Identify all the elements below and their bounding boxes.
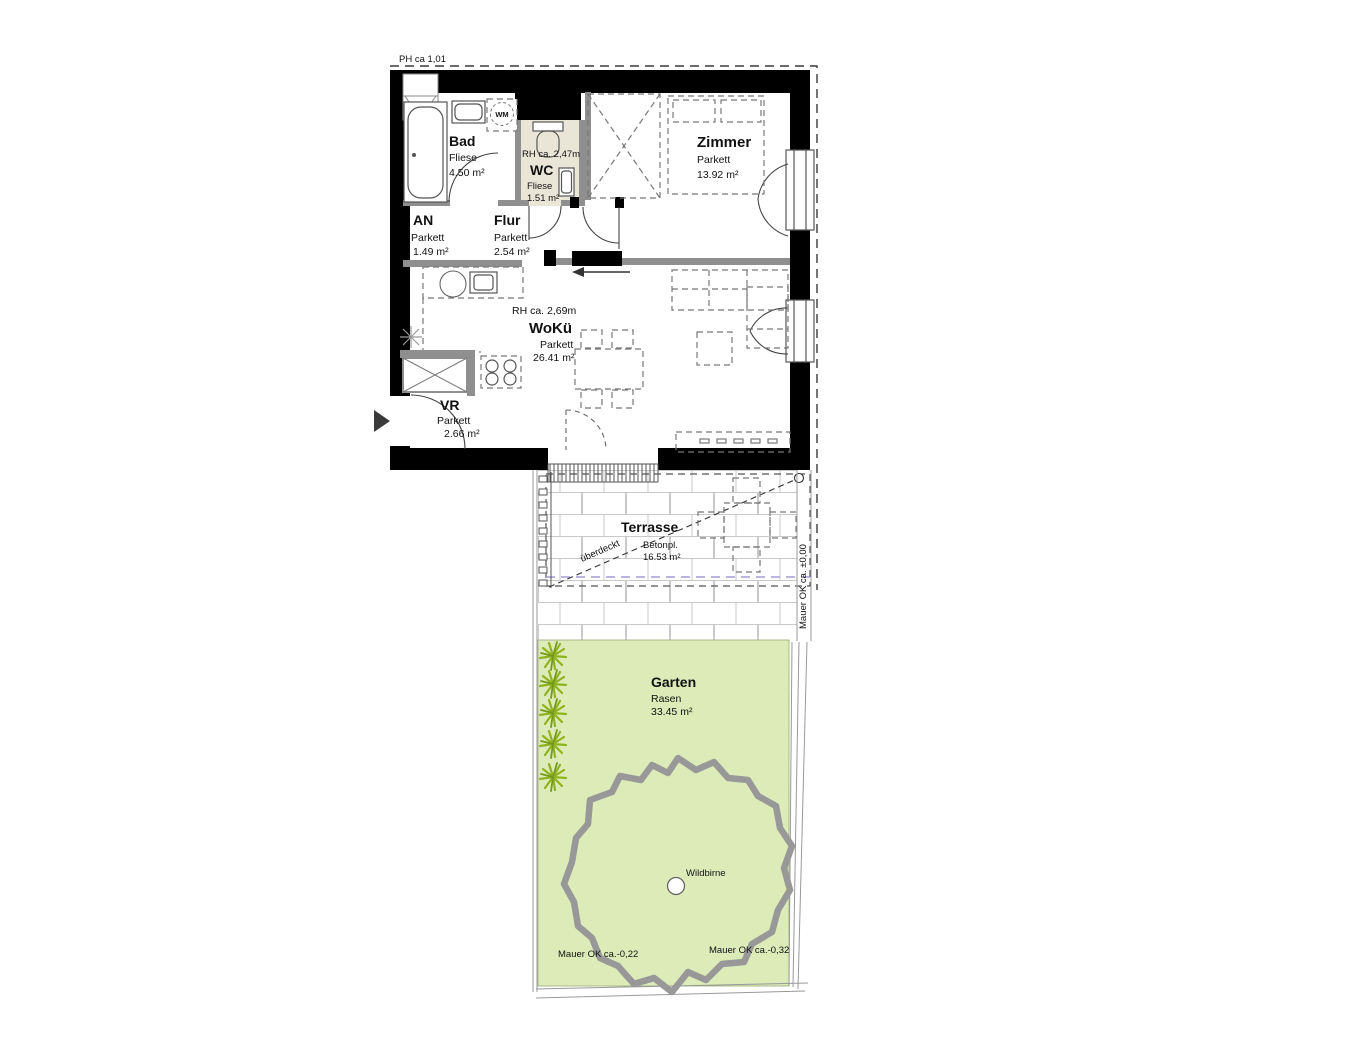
garten-name: Garten — [651, 674, 696, 690]
tree-label: Wildbirne — [686, 868, 726, 879]
terrasse-floor: Betonpl. — [643, 540, 678, 551]
boiler-icon — [400, 326, 422, 348]
parapet-height-label: PH ca 1,01 — [399, 54, 446, 65]
wc-area: 1.51 m² — [527, 193, 559, 204]
bad-washbasin — [452, 101, 485, 123]
an-area: 1.49 m² — [413, 246, 449, 258]
garten-floor: Rasen — [651, 693, 682, 705]
washing-machine: WM — [487, 99, 517, 131]
terrasse-wall-label: Mauer OK ca. ±0,00 — [798, 544, 809, 629]
vr-wardrobe — [400, 350, 475, 396]
terrasse-area-value: 16.53 m² — [643, 552, 681, 563]
tree-trunk — [668, 878, 685, 895]
zimmer-name: Zimmer — [697, 134, 751, 151]
floorplan-canvas: PH ca 1,01 überdeckt — [0, 0, 1370, 1060]
zimmer-area: 13.92 m² — [697, 169, 739, 181]
bathtub — [404, 102, 447, 202]
wc-floor: Fliese — [527, 181, 552, 192]
flur-area: 2.54 m² — [494, 246, 530, 258]
an-floor: Parkett — [411, 232, 444, 244]
garten-lawn — [538, 640, 789, 986]
bad-floor: Fliese — [449, 152, 477, 164]
bad-area: 4.50 m² — [449, 167, 485, 179]
vr-floor: Parkett — [437, 415, 470, 427]
sliding-door-pocket — [572, 251, 622, 266]
vr-name: VR — [440, 397, 459, 413]
garten-wall-left-label: Mauer OK ca.-0,22 — [558, 949, 638, 960]
wc-shaft — [515, 92, 581, 122]
woku-name: WoKü — [529, 320, 572, 337]
wc-rh: RH ca. 2,47m — [522, 149, 580, 160]
woku-area: 26.41 m² — [533, 352, 575, 364]
zimmer-floor: Parkett — [697, 154, 730, 166]
vr-area: 2.66 m² — [444, 428, 480, 440]
wc-washbasin — [559, 168, 574, 196]
garten-area-value: 33.45 m² — [651, 706, 693, 718]
garten-wall-right-label: Mauer OK ca.-0,32 — [709, 945, 789, 956]
an-name: AN — [413, 212, 433, 228]
flur-name: Flur — [494, 212, 521, 228]
woku-floor: Parkett — [540, 339, 573, 351]
woku-rh: RH ca. 2,69m — [512, 305, 576, 317]
wm-label: WM — [495, 110, 508, 119]
wc-name: WC — [530, 162, 553, 178]
terrasse-name: Terrasse — [621, 519, 679, 535]
garten-area: Wildbirne Garten Rasen 33.45 m² Mauer OK… — [536, 640, 808, 998]
bad-name: Bad — [449, 133, 475, 149]
flur-floor: Parkett — [494, 232, 527, 244]
